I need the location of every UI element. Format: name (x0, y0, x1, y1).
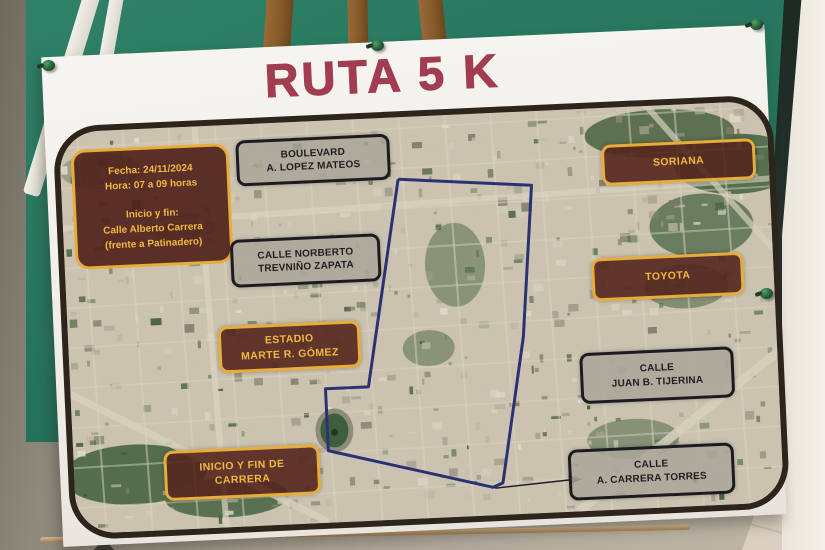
pushpin-icon (42, 60, 55, 71)
landmark-label-toyota: TOYOTA (591, 252, 745, 302)
street-label-boulevard-lopez-mateos: BOULEVARD A. LOPEZ MATEOS (235, 134, 391, 187)
photo-scene: RUTA 5 K (0, 0, 825, 550)
label-line: SORIANA (604, 152, 752, 173)
race-info-box: Fecha: 24/11/2024 Hora: 07 a 09 horas In… (70, 143, 233, 270)
route-poster: RUTA 5 K (41, 25, 786, 547)
label-line: TOYOTA (595, 266, 741, 287)
landmark-label-soriana: SORIANA (601, 138, 757, 186)
pushpin-icon (371, 40, 384, 51)
pushpin-icon (750, 19, 763, 30)
street-label-norberto-trevnino-zapata: CALLE NORBERTO TREVNIÑO ZAPATA (230, 233, 382, 288)
street-label-a-carrera-torres: CALLE A. CARRERA TORRES (568, 442, 736, 500)
pushpin-icon (760, 288, 773, 299)
street-label-juan-b-tijerina: CALLE JUAN B. TIJERINA (579, 346, 735, 404)
landmark-label-inicio-fin-carrera: INICIO Y FIN DE CARRERA (163, 444, 321, 501)
landmark-label-estadio-marte-gomez: ESTADIO MARTE R. GÓMEZ (218, 320, 362, 373)
